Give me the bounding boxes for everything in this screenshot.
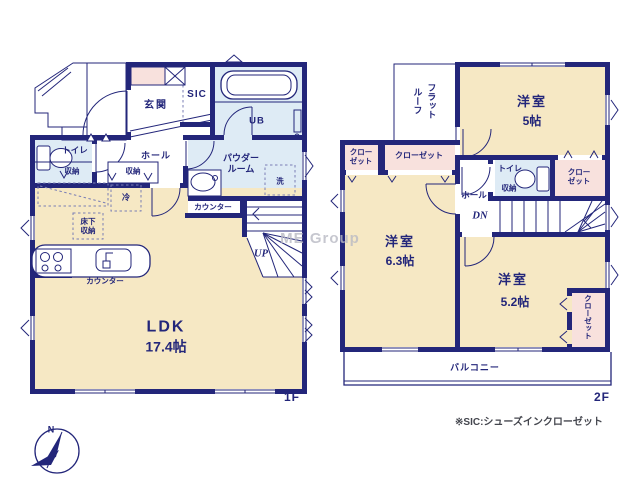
room-label-ub: UB <box>249 115 265 126</box>
kitchen-counter-icon <box>32 245 150 277</box>
floorplan-page: 玄関 SIC UB トイレ 収納 収納 ホール パウダー ルーム 洗 カウンター… <box>0 0 640 480</box>
room-label-hall-1f: ホール <box>141 151 171 162</box>
underfloor-line2: 収納 <box>81 226 96 235</box>
label-hall-storage: 収納 <box>126 167 141 176</box>
entrance-porch <box>35 63 126 140</box>
room-label-ldk: LDK <box>147 317 186 336</box>
label-laundry: 洗 <box>276 177 284 186</box>
room-label-toilet-2f: トイレ <box>498 164 522 174</box>
label-fridge: 冷 <box>122 193 130 203</box>
closet-nw-line2: ゼット <box>350 157 373 166</box>
floor-label-2f: 2F <box>594 390 610 404</box>
label-closet-nw: クロー ゼット <box>350 148 373 165</box>
room-label-west5-size: 5帖 <box>523 114 542 128</box>
room-label-genkan: 玄関 <box>144 100 168 112</box>
stairs-2f <box>500 201 605 232</box>
compass-icon <box>31 429 79 473</box>
label-toilet-storage: 収納 <box>65 167 80 176</box>
room-label-sic: SIC <box>187 89 207 101</box>
room-label-west52: 洋室 <box>498 272 528 288</box>
label-flatroof-col2: ルーフ <box>412 88 423 115</box>
floor-label-1f: 1F <box>284 390 300 404</box>
watermark: ME Group <box>280 230 360 248</box>
room-label-ldk-size: 17.4帖 <box>145 339 186 356</box>
room-fills-2f <box>345 67 605 347</box>
label-stairs-dn: DN <box>472 211 487 224</box>
label-closet-e: クロー ゼット <box>568 168 591 185</box>
closet-e-line2: ゼット <box>568 177 591 186</box>
label-flatroof-col1: フラット <box>426 83 437 119</box>
room-label-west52-size: 5.2帖 <box>501 295 530 309</box>
powder-room-line1: パウダー <box>223 153 259 164</box>
label-balcony: バルコニー <box>450 363 500 374</box>
label-closet-se: クローゼット <box>584 295 593 340</box>
room-label-west5: 洋室 <box>517 94 547 110</box>
label-stairs-up: UP <box>254 249 268 262</box>
washbasin-icon <box>188 170 221 196</box>
underfloor-line1: 床下 <box>81 217 96 226</box>
label-counter-kitchen: カウンター <box>86 277 124 286</box>
label-closet-n: クローゼット <box>395 151 443 161</box>
sic-footnote: ※SIC:シューズインクローゼット <box>455 417 603 429</box>
label-underfloor-storage: 床下 収納 <box>81 217 96 235</box>
room-label-powder-room: パウダー ルーム <box>223 153 259 175</box>
floorplan-2f <box>331 62 618 385</box>
room-label-toilet-1f: トイレ <box>62 145 88 155</box>
compass-north-label: N <box>48 425 55 436</box>
powder-room-line2: ルーム <box>223 164 259 175</box>
room-label-west63-size: 6.3帖 <box>386 254 415 268</box>
label-counter-powder: カウンター <box>194 203 232 212</box>
room-label-hall-2f: ホール <box>461 190 487 200</box>
room-label-west63: 洋室 <box>385 234 415 250</box>
label-toilet-storage-2f: 収納 <box>502 184 517 193</box>
